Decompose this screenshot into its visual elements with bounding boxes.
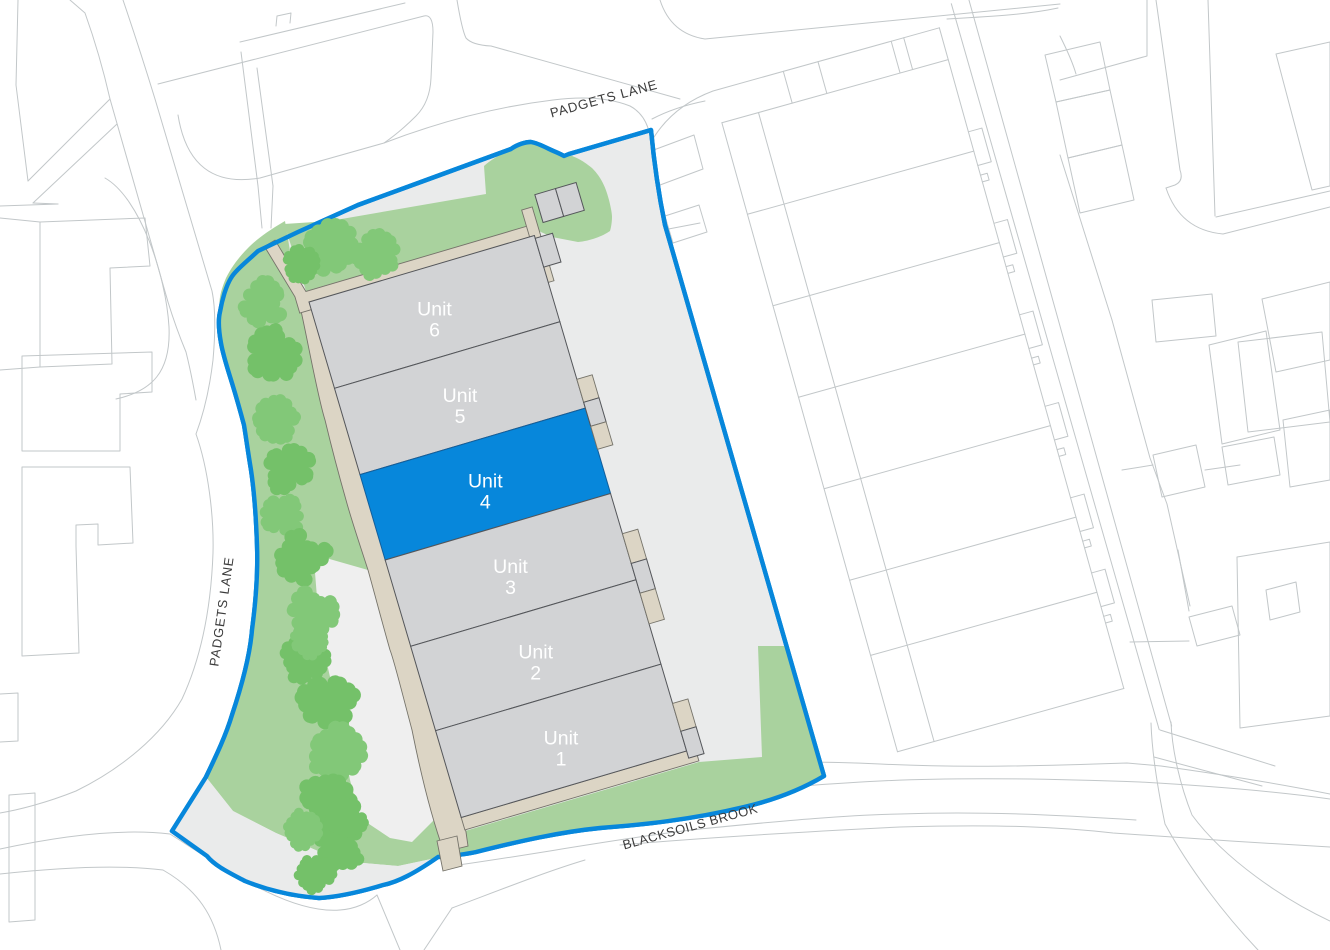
svg-text:6: 6: [429, 320, 440, 342]
svg-text:4: 4: [480, 492, 491, 514]
svg-text:2: 2: [530, 663, 541, 685]
svg-text:3: 3: [505, 577, 516, 599]
svg-text:Unit: Unit: [493, 556, 528, 578]
svg-text:Unit: Unit: [417, 299, 452, 321]
svg-text:Unit: Unit: [518, 642, 553, 664]
svg-text:Unit: Unit: [468, 471, 503, 493]
svg-text:1: 1: [556, 748, 567, 770]
svg-text:Unit: Unit: [443, 385, 478, 407]
svg-text:Unit: Unit: [544, 727, 579, 749]
svg-text:5: 5: [455, 406, 466, 428]
